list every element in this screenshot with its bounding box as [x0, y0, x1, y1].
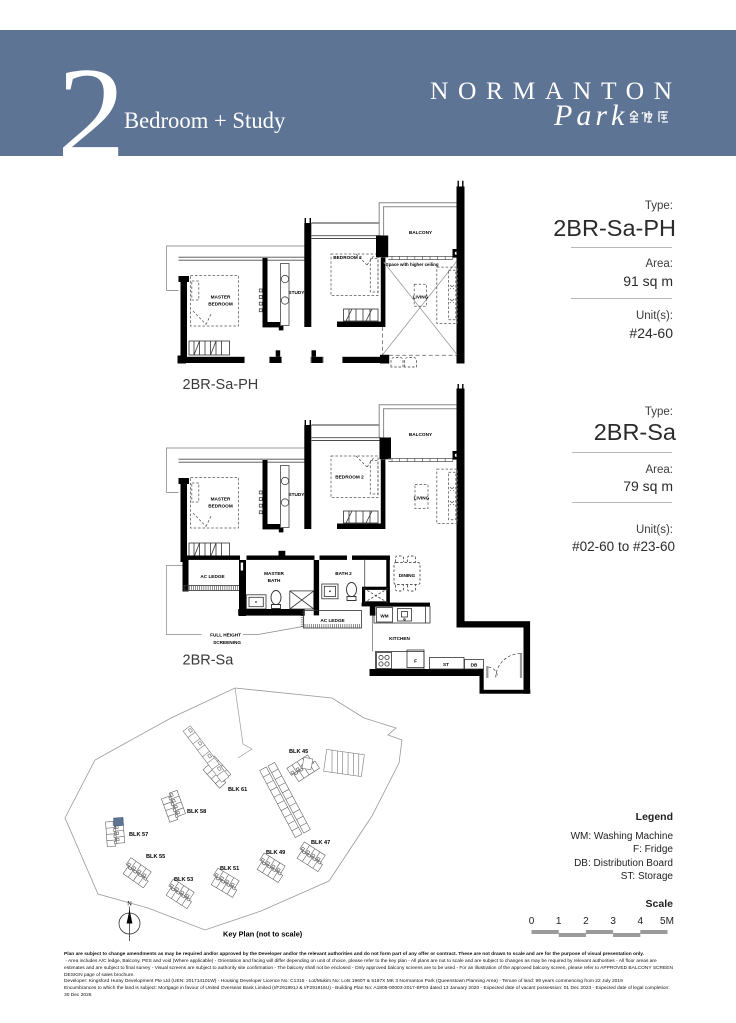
svg-text:F: F — [414, 659, 417, 664]
svg-text:BEDROOM: BEDROOM — [208, 302, 233, 307]
svg-text:BALCONY: BALCONY — [409, 230, 433, 235]
svg-text:MASTER: MASTER — [211, 295, 231, 300]
svg-text:KITCHEN: KITCHEN — [389, 636, 410, 641]
svg-text:BLK 47: BLK 47 — [311, 840, 330, 846]
svg-text:MASTER: MASTER — [211, 497, 231, 502]
svg-text:AC LEDGE: AC LEDGE — [200, 574, 224, 579]
svg-text:BEDROOM 2: BEDROOM 2 — [333, 255, 362, 260]
svg-text:2BR-Sa-PH: 2BR-Sa-PH — [183, 377, 259, 393]
svg-text:Key Plan (not to scale): Key Plan (not to scale) — [223, 930, 303, 939]
svg-text:BATH 2: BATH 2 — [335, 571, 352, 576]
svg-text:BALCONY: BALCONY — [409, 432, 433, 437]
svg-text:DINING: DINING — [399, 573, 416, 578]
svg-text:ST: ST — [443, 662, 449, 667]
svg-text:DB: DB — [471, 663, 478, 668]
svg-text:FULL HEIGHT: FULL HEIGHT — [210, 633, 241, 638]
svg-text:N: N — [127, 902, 131, 908]
svg-text:BLK 61: BLK 61 — [228, 787, 247, 793]
svg-text:SCREENING: SCREENING — [213, 640, 241, 645]
svg-text:BLK 55: BLK 55 — [146, 854, 165, 860]
svg-text:LIVING: LIVING — [414, 495, 430, 500]
svg-text:2BR-Sa: 2BR-Sa — [183, 653, 235, 669]
svg-text:BLK 53: BLK 53 — [174, 877, 193, 883]
svg-text:BLK 51: BLK 51 — [220, 866, 239, 872]
svg-text:Space with higher ceiling: Space with higher ceiling — [386, 262, 439, 267]
svg-text:BLK 49: BLK 49 — [266, 850, 285, 856]
svg-text:BEDROOM: BEDROOM — [208, 504, 233, 509]
svg-text:BLK 58: BLK 58 — [187, 809, 206, 815]
svg-text:BLK 57: BLK 57 — [129, 832, 148, 838]
svg-text:STUDY: STUDY — [289, 492, 306, 497]
svg-text:WM: WM — [380, 613, 388, 618]
svg-text:BEDROOM 2: BEDROOM 2 — [335, 475, 364, 480]
svg-text:STUDY: STUDY — [289, 290, 306, 295]
svg-text:BATH: BATH — [268, 578, 281, 583]
svg-text:BLK 45: BLK 45 — [289, 749, 308, 755]
svg-text:LIVING: LIVING — [413, 294, 429, 299]
svg-text:MASTER: MASTER — [264, 571, 284, 576]
svg-text:AC LEDGE: AC LEDGE — [320, 618, 344, 623]
